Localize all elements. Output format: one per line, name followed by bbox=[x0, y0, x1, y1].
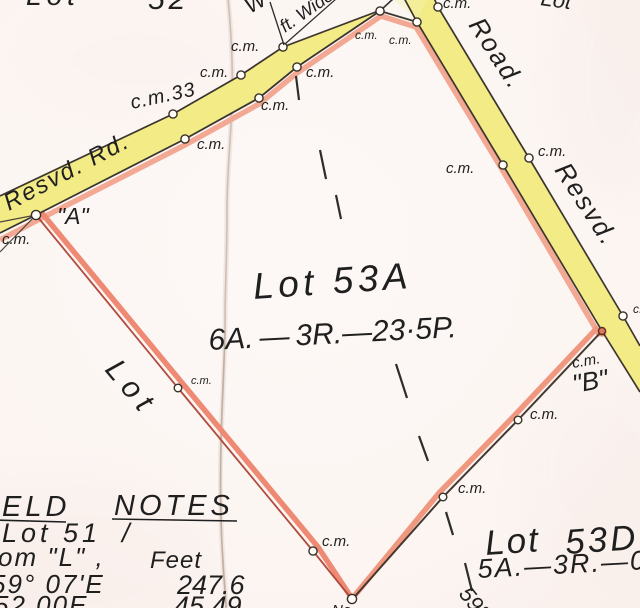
svg-text:c.m.: c.m. bbox=[389, 33, 412, 47]
svg-text:c.m.: c.m. bbox=[261, 97, 289, 114]
svg-text:52: 52 bbox=[148, 0, 189, 16]
svg-text:c.m.: c.m. bbox=[446, 160, 474, 177]
svg-text:c.m.: c.m. bbox=[458, 480, 486, 497]
svg-text:c.m.: c.m. bbox=[355, 28, 378, 42]
svg-text:c.m.: c.m. bbox=[231, 38, 259, 55]
svg-text:c.m.: c.m. bbox=[2, 231, 30, 248]
svg-text:Lot: Lot bbox=[26, 0, 80, 11]
svg-text:c.m.: c.m. bbox=[443, 0, 471, 12]
svg-text:c.m.: c.m. bbox=[538, 143, 566, 160]
svg-text:c.m.: c.m. bbox=[200, 64, 228, 81]
svg-text:c.m.: c.m. bbox=[197, 136, 225, 153]
svg-text:No: No bbox=[332, 602, 351, 608]
svg-text:c.m.: c.m. bbox=[322, 533, 350, 550]
svg-text:c.: c. bbox=[633, 302, 640, 316]
svg-text:c.m.: c.m. bbox=[191, 375, 212, 387]
svg-text:45 49: 45 49 bbox=[174, 591, 242, 608]
svg-text:"B": "B" bbox=[570, 363, 612, 399]
svg-text:52 00E: 52 00E bbox=[0, 590, 88, 608]
svg-text:c.m.: c.m. bbox=[306, 64, 334, 81]
svg-text:c.m.: c.m. bbox=[530, 406, 558, 423]
svg-text:om "L" ,: om "L" , bbox=[0, 542, 105, 572]
svg-text:"A": "A" bbox=[57, 203, 91, 229]
